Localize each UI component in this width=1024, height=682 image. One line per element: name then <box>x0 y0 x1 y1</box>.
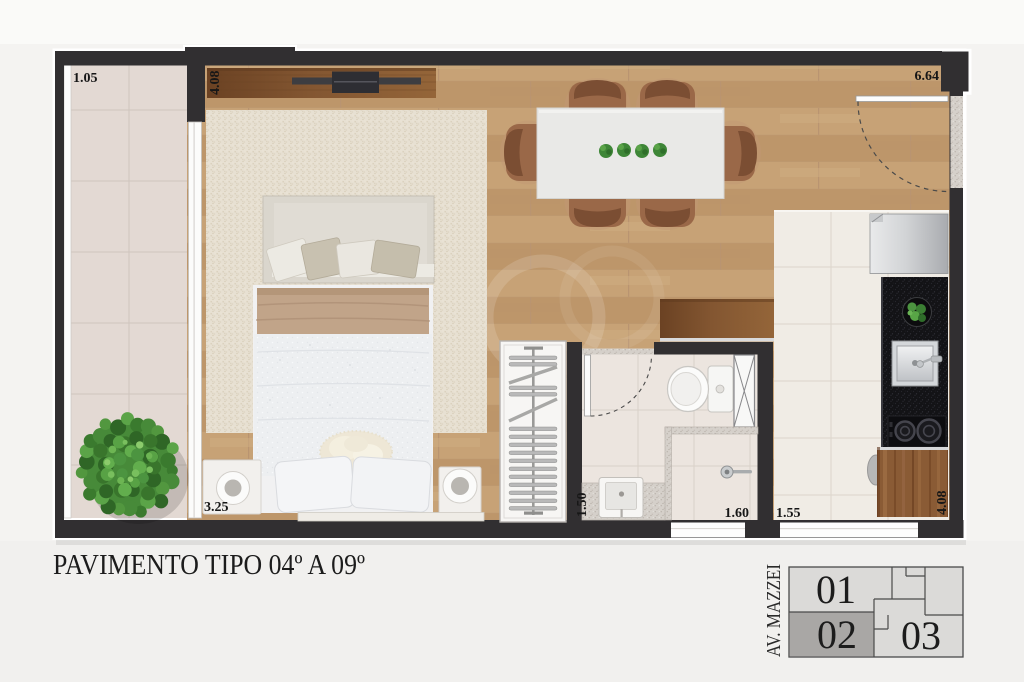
svg-text:4.08: 4.08 <box>935 491 950 516</box>
svg-text:1.55: 1.55 <box>776 506 801 521</box>
svg-text:1.50: 1.50 <box>575 493 590 518</box>
svg-text:01: 01 <box>816 567 856 612</box>
svg-text:3.25: 3.25 <box>204 500 229 515</box>
svg-text:6.64: 6.64 <box>915 69 940 84</box>
svg-text:1.05: 1.05 <box>73 71 98 86</box>
svg-text:03: 03 <box>901 613 941 658</box>
svg-text:1.60: 1.60 <box>725 506 750 521</box>
svg-text:PAVIMENTO TIPO 04º A 09º: PAVIMENTO TIPO 04º A 09º <box>53 549 365 581</box>
svg-text:AV. MAZZEI: AV. MAZZEI <box>763 564 785 657</box>
svg-text:4.08: 4.08 <box>208 71 223 96</box>
svg-text:02: 02 <box>817 612 857 657</box>
